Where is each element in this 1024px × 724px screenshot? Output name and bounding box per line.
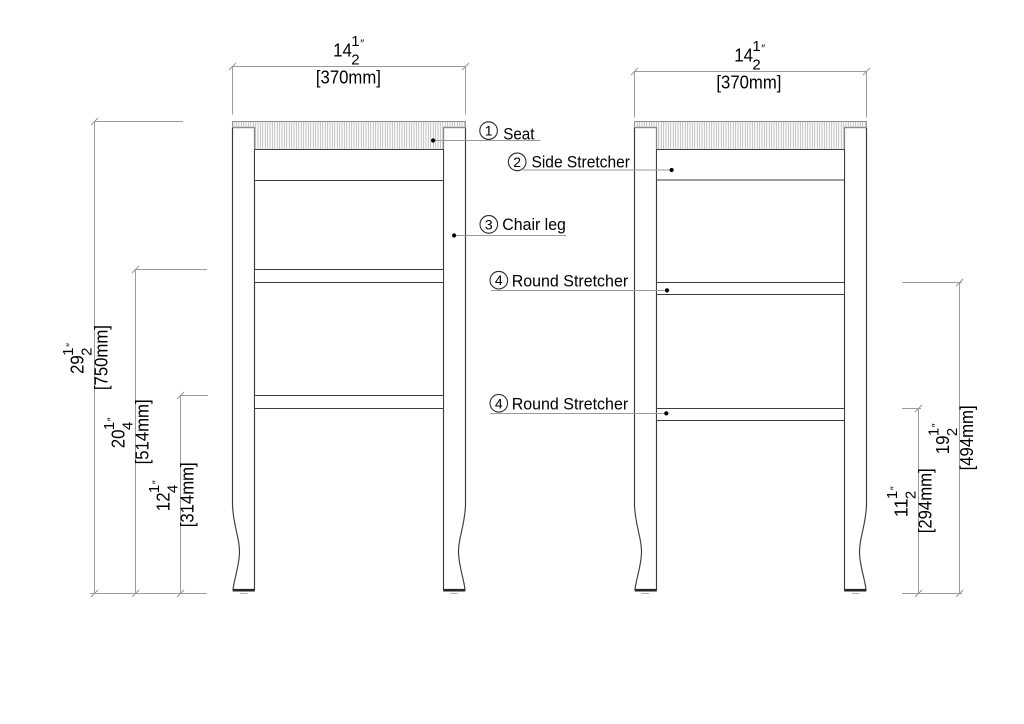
svg-text:Seat: Seat (503, 125, 535, 144)
svg-text:3: 3 (485, 216, 493, 232)
svg-text:Chair leg: Chair leg (502, 215, 566, 234)
svg-text:1: 1 (351, 33, 359, 50)
svg-text:2: 2 (513, 154, 521, 170)
svg-text:″: ″ (151, 480, 163, 484)
svg-text:1: 1 (146, 485, 163, 493)
svg-text:″: ″ (360, 38, 364, 50)
svg-text:1: 1 (752, 38, 760, 55)
svg-text:[370mm]: [370mm] (316, 67, 381, 87)
svg-text:14: 14 (333, 41, 352, 61)
svg-text:2: 2 (351, 51, 359, 68)
svg-text:20: 20 (109, 430, 129, 449)
svg-text:[514mm]: [514mm] (133, 399, 153, 464)
svg-text:″: ″ (106, 417, 118, 421)
svg-text:14: 14 (734, 46, 753, 66)
svg-text:4: 4 (495, 272, 503, 288)
svg-text:[370mm]: [370mm] (716, 73, 781, 93)
svg-text:″: ″ (761, 43, 765, 55)
svg-text:19: 19 (933, 436, 953, 455)
svg-text:1: 1 (925, 428, 942, 436)
svg-text:12: 12 (154, 492, 174, 511)
svg-text:1: 1 (884, 491, 901, 499)
svg-text:2: 2 (752, 56, 760, 73)
svg-text:Round Stretcher: Round Stretcher (512, 394, 629, 413)
svg-text:1: 1 (485, 123, 493, 139)
svg-text:29: 29 (68, 355, 88, 374)
svg-text:1: 1 (101, 422, 118, 430)
svg-text:Round Stretcher: Round Stretcher (512, 271, 629, 290)
svg-text:″: ″ (65, 343, 77, 347)
svg-text:[494mm]: [494mm] (957, 405, 977, 470)
svg-text:11: 11 (892, 498, 912, 517)
svg-text:[294mm]: [294mm] (916, 468, 936, 533)
svg-text:″: ″ (930, 423, 942, 427)
svg-text:[314mm]: [314mm] (178, 462, 198, 527)
svg-text:Side Stretcher: Side Stretcher (532, 153, 631, 172)
svg-text:[750mm]: [750mm] (92, 325, 112, 390)
svg-text:1: 1 (60, 348, 77, 356)
svg-text:4: 4 (495, 395, 503, 411)
svg-text:″: ″ (889, 486, 901, 490)
